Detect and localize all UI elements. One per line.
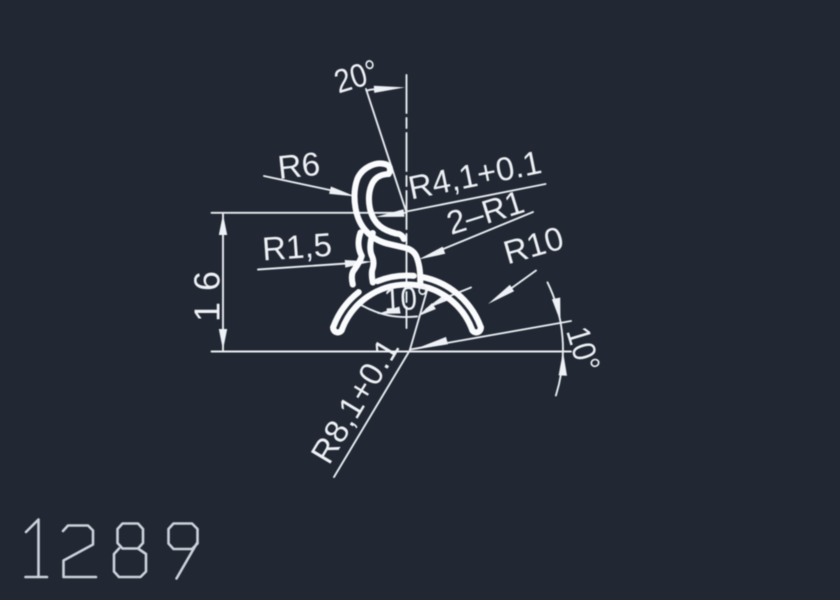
svg-text:16: 16 xyxy=(187,260,228,322)
svg-text:10°: 10° xyxy=(383,279,430,318)
svg-text:R1,5: R1,5 xyxy=(261,226,333,268)
svg-text:R6: R6 xyxy=(276,145,322,186)
